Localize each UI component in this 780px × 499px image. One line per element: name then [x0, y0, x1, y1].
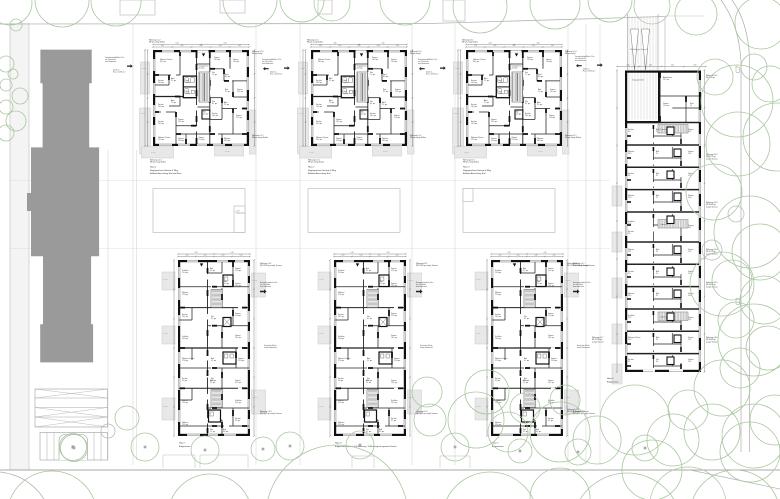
- svg-text:20,1: 20,1: [628, 251, 631, 253]
- svg-text:WR 110,2 qm zuzügl. Terrasse: WR 110,2 qm zuzügl. Terrasse: [567, 411, 589, 413]
- svg-text:5,45: 5,45: [513, 45, 516, 47]
- svg-text:Erdgeschoss: Erdgeschoss: [607, 381, 619, 383]
- svg-text:5,45: 5,45: [334, 43, 337, 45]
- svg-text:5,45: 5,45: [387, 252, 390, 254]
- svg-text:9,6: 9,6: [628, 175, 630, 177]
- svg-text:5,45: 5,45: [382, 43, 385, 45]
- svg-text:9,6: 9,6: [628, 273, 630, 275]
- svg-text:WE qm zuzügl. Balkon: WE qm zuzügl. Balkon: [565, 137, 581, 139]
- svg-text:5,45: 5,45: [351, 252, 354, 254]
- svg-text:5,45: 5,45: [544, 252, 547, 254]
- svg-text:Wohnung 3.1.2: Wohnung 3.1.2: [462, 39, 473, 41]
- svg-text:WF 98,06 qm: WF 98,06 qm: [706, 204, 716, 206]
- svg-text:5,45: 5,45: [342, 255, 345, 257]
- svg-text:20,5: 20,5: [628, 197, 631, 199]
- svg-text:5,45: 5,45: [204, 255, 207, 257]
- svg-text:5,45: 5,45: [238, 45, 241, 47]
- svg-text:5,45: 5,45: [338, 45, 341, 47]
- svg-text:15,2: 15,2: [628, 223, 631, 225]
- svg-text:4,1: 4,1: [690, 105, 692, 107]
- svg-text:WE qm zuzügl. Balkon: WE qm zuzügl. Balkon: [149, 42, 165, 44]
- svg-text:5,45: 5,45: [396, 255, 399, 257]
- svg-text:Hausanschlussfläche 0,6 m: Hausanschlussfläche 0,6 m: [573, 282, 591, 284]
- svg-text:5,45: 5,45: [517, 255, 520, 257]
- svg-text:Haus 7: Haus 7: [179, 443, 186, 445]
- svg-text:25,5: 25,5: [628, 339, 631, 341]
- svg-text:WR 139,3 qm zuzügl. Terrasse: WR 139,3 qm zuzügl. Terrasse: [260, 265, 282, 267]
- svg-text:WE qm zuzügl. Balkon: WE qm zuzügl. Balkon: [252, 137, 268, 139]
- svg-text:Regelgeschoss Variante 4 Whg: Regelgeschoss Variante 4 Whg: [150, 169, 178, 172]
- svg-text:5,45: 5,45: [195, 252, 198, 254]
- svg-text:Wohnung 4.0.3: Wohnung 4.0.3: [706, 202, 717, 204]
- svg-text:WE qm zuzügl.: WE qm zuzügl.: [252, 53, 263, 55]
- svg-text:9,6: 9,6: [628, 233, 630, 235]
- svg-text:ohne Hindernisse: ohne Hindernisse: [260, 286, 271, 288]
- svg-text:zuzügl. Terrasse: zuzügl. Terrasse: [706, 286, 718, 288]
- svg-text:5,45: 5,45: [200, 45, 203, 47]
- svg-text:5,45: 5,45: [219, 45, 222, 47]
- svg-text:5,1: 5,1: [656, 295, 658, 297]
- svg-text:Haus 1 und Haus 2: Haus 1 und Haus 2: [583, 70, 596, 72]
- svg-text:WF 101,81 qm: WF 101,81 qm: [592, 339, 603, 341]
- svg-text:Balkone Ausrichtung Süd: Balkone Ausrichtung Süd: [463, 172, 485, 175]
- svg-text:Wohnung 2.1.1: Wohnung 2.1.1: [410, 135, 421, 137]
- svg-text:5,1: 5,1: [656, 197, 658, 199]
- svg-text:5,1: 5,1: [656, 273, 658, 275]
- svg-text:5,45: 5,45: [396, 45, 399, 47]
- svg-text:zuzügl. Terrasse: zuzügl. Terrasse: [706, 158, 718, 160]
- svg-text:5,1: 5,1: [656, 153, 658, 155]
- svg-text:Wohnung 6.0.3: Wohnung 6.0.3: [416, 411, 427, 413]
- svg-text:11,5: 11,5: [688, 339, 691, 341]
- svg-text:5,45: 5,45: [319, 45, 322, 47]
- svg-text:Treppenraum: Treppenraum: [660, 224, 668, 226]
- svg-text:11,5: 11,5: [688, 319, 691, 321]
- svg-text:5,45: 5,45: [493, 45, 496, 47]
- svg-text:13,0: 13,0: [688, 197, 691, 199]
- svg-text:5,45: 5,45: [474, 45, 477, 47]
- svg-text:Wohnung 2.1.4: Wohnung 2.1.4: [410, 51, 421, 53]
- svg-text:5,45: 5,45: [499, 255, 502, 257]
- svg-text:5,1: 5,1: [656, 339, 658, 341]
- svg-text:Wohnung 4.0.7: Wohnung 4.0.7: [592, 337, 603, 339]
- svg-text:5,45: 5,45: [671, 65, 674, 67]
- svg-text:5,45: 5,45: [537, 43, 540, 45]
- svg-text:Wohnung 3.1.1: Wohnung 3.1.1: [565, 135, 576, 137]
- svg-text:5,45: 5,45: [240, 255, 243, 257]
- svg-text:ohne Hindernisse: ohne Hindernisse: [573, 286, 584, 288]
- svg-text:ohne Hindernisse: ohne Hindernisse: [105, 61, 116, 63]
- svg-text:Balkone Ausrichtung Süd: Balkone Ausrichtung Süd: [308, 172, 330, 175]
- svg-text:Haus 3: Haus 3: [463, 167, 470, 169]
- svg-text:zuzügl. Terrasse: zuzügl. Terrasse: [706, 341, 718, 343]
- svg-text:9,6: 9,6: [628, 131, 630, 133]
- svg-text:5,45: 5,45: [358, 45, 361, 47]
- svg-text:11,5: 11,5: [688, 227, 691, 229]
- svg-text:WE qm zuzügl.: WE qm zuzügl.: [410, 53, 421, 55]
- svg-text:Wohnung 1.1.4: Wohnung 1.1.4: [252, 51, 263, 53]
- svg-text:12,9 qm: 12,9 qm: [663, 105, 670, 107]
- svg-text:9,1: 9,1: [628, 361, 630, 363]
- svg-text:zuzügl. Terrasse: zuzügl. Terrasse: [592, 341, 604, 343]
- svg-text:WR 139,3 qm zuzügl. Terrasse: WR 139,3 qm zuzügl. Terrasse: [416, 265, 438, 267]
- svg-text:ohne Hindernisse: ohne Hindernisse: [262, 63, 273, 65]
- svg-text:Haus 5: Haus 5: [492, 443, 499, 445]
- svg-text:WR 139,3 qm zuzügl. Terrasse: WR 139,3 qm zuzügl. Terrasse: [567, 265, 589, 267]
- svg-text:5,45: 5,45: [186, 255, 189, 257]
- svg-text:10,5: 10,5: [688, 361, 691, 363]
- svg-text:5,1: 5,1: [656, 131, 658, 133]
- svg-text:5,45: 5,45: [551, 45, 554, 47]
- svg-text:5,45: 5,45: [627, 65, 630, 67]
- svg-text:5,45: 5,45: [508, 252, 511, 254]
- svg-text:Wohnung 5.0.1: Wohnung 5.0.1: [567, 263, 578, 265]
- svg-text:11,5: 11,5: [688, 273, 691, 275]
- svg-text:5,45: 5,45: [649, 65, 652, 67]
- svg-text:WF 107,3 qm: WF 107,3 qm: [706, 156, 716, 158]
- svg-text:5,45: 5,45: [553, 255, 556, 257]
- svg-text:ohne Hindernisse: ohne Hindernisse: [575, 60, 586, 62]
- svg-text:5,1: 5,1: [656, 251, 658, 253]
- svg-text:Balkone Ausrichtung Süd und We: Balkone Ausrichtung Süd und West: [150, 172, 182, 175]
- svg-text:WF 98,06 qm: WF 98,06 qm: [706, 339, 716, 341]
- svg-text:Haus 2: Haus 2: [308, 167, 315, 169]
- svg-text:Regelgeschoss Variante 4 Whg: Regelgeschoss Variante 4 Whg: [308, 169, 336, 172]
- svg-text:Wohnung 6.0.1: Wohnung 6.0.1: [416, 263, 427, 265]
- svg-text:WE qm zuzügl. Balkon: WE qm zuzügl. Balkon: [308, 162, 324, 164]
- svg-text:5,45: 5,45: [176, 43, 179, 45]
- svg-text:Hausanschlussfläche 0,6 m: Hausanschlussfläche 0,6 m: [260, 282, 278, 284]
- svg-text:Wohnung 4.0.4: Wohnung 4.0.4: [706, 249, 717, 251]
- svg-text:Regelgeschoss Variante 4 Whg: Regelgeschoss Variante 4 Whg: [463, 169, 491, 172]
- svg-text:5,45: 5,45: [532, 45, 535, 47]
- svg-text:5,1: 5,1: [656, 175, 658, 177]
- svg-text:Wohnung 1.1.1: Wohnung 1.1.1: [252, 135, 263, 137]
- svg-text:12,5: 12,5: [688, 251, 691, 253]
- svg-text:WR 110,2 qm zuzügl. Terrasse: WR 110,2 qm zuzügl. Terrasse: [260, 413, 282, 415]
- svg-text:5,45: 5,45: [360, 255, 363, 257]
- svg-text:WR 110,2 qm zuzügl. Terrasse: WR 110,2 qm zuzügl. Terrasse: [416, 413, 438, 415]
- svg-text:5,45: 5,45: [161, 45, 164, 47]
- svg-text:Haus 1 und Haus 2: Haus 1 und Haus 2: [270, 73, 283, 75]
- svg-text:zuzügl. Terrasse: zuzügl. Terrasse: [706, 206, 718, 208]
- svg-text:WE qm zuzügl. Balkon: WE qm zuzügl. Balkon: [462, 42, 478, 44]
- svg-text:ohne Hindernisse: ohne Hindernisse: [418, 63, 429, 65]
- svg-text:WE qm zuzügl. Balkon: WE qm zuzügl. Balkon: [150, 162, 166, 164]
- svg-text:5,45: 5,45: [222, 255, 225, 257]
- svg-text:Haus 1: Haus 1: [150, 167, 157, 169]
- svg-text:11,5: 11,5: [688, 131, 691, 133]
- svg-text:Hausanschlussfläche 0,6 m: Hausanschlussfläche 0,6 m: [416, 282, 434, 284]
- svg-text:WE qm zuzügl. Balkon: WE qm zuzügl. Balkon: [410, 137, 426, 139]
- svg-text:Wohnung 7.0.1: Wohnung 7.0.1: [260, 263, 271, 265]
- svg-text:15,2: 15,2: [628, 317, 631, 319]
- svg-text:5,45: 5,45: [180, 45, 183, 47]
- svg-text:ohne Hindernisse: ohne Hindernisse: [416, 286, 427, 288]
- svg-text:Haus 1 und Haus 2: Haus 1 und Haus 2: [426, 73, 439, 75]
- svg-text:WE qm zuzügl. Balkon: WE qm zuzügl. Balkon: [463, 162, 479, 164]
- svg-text:Wohnung 3.1.4: Wohnung 3.1.4: [565, 51, 576, 53]
- svg-text:WE qm zuzügl.: WE qm zuzügl.: [565, 53, 576, 55]
- svg-text:Wohnung 7.0.3: Wohnung 7.0.3: [260, 411, 271, 413]
- svg-text:WF 98,06 qm: WF 98,06 qm: [706, 284, 716, 286]
- svg-text:20,5: 20,5: [628, 153, 631, 155]
- svg-text:5,45: 5,45: [693, 65, 696, 67]
- svg-text:Wohnung 2.1.3: Wohnung 2.1.3: [308, 160, 319, 162]
- svg-text:Wohnung 2.1.2: Wohnung 2.1.2: [307, 39, 318, 41]
- svg-text:WF 41,4 qm: WF 41,4 qm: [706, 77, 715, 79]
- svg-text:5,45: 5,45: [489, 43, 492, 45]
- svg-text:Wohnung 4.0.6: Wohnung 4.0.6: [706, 337, 717, 339]
- svg-text:5,45: 5,45: [377, 45, 380, 47]
- svg-text:5,45: 5,45: [378, 255, 381, 257]
- svg-text:13,0: 13,0: [688, 295, 691, 297]
- svg-text:Erdgeschoss: Erdgeschoss: [179, 446, 191, 448]
- svg-text:13,0: 13,0: [688, 153, 691, 155]
- svg-text:Haus 6: Haus 6: [335, 443, 342, 445]
- svg-text:WE qm zuzügl. Balkon: WE qm zuzügl. Balkon: [307, 42, 323, 44]
- svg-text:20,5: 20,5: [628, 295, 631, 297]
- svg-text:5,45: 5,45: [535, 255, 538, 257]
- svg-text:Haus 4: Haus 4: [607, 378, 614, 380]
- svg-text:5,45: 5,45: [224, 43, 227, 45]
- svg-text:Wohnung 1.1.2: Wohnung 1.1.2: [149, 39, 160, 41]
- svg-text:6,1: 6,1: [656, 361, 658, 363]
- svg-text:Wohnung 1.1.3: Wohnung 1.1.3: [150, 160, 161, 162]
- svg-text:Wohnung 3.1.3: Wohnung 3.1.3: [463, 160, 474, 162]
- svg-text:5,45: 5,45: [231, 252, 234, 254]
- svg-text:12,1 qm: 12,1 qm: [663, 79, 670, 81]
- svg-text:Haus 1 und Haus 2: Haus 1 und Haus 2: [113, 71, 126, 73]
